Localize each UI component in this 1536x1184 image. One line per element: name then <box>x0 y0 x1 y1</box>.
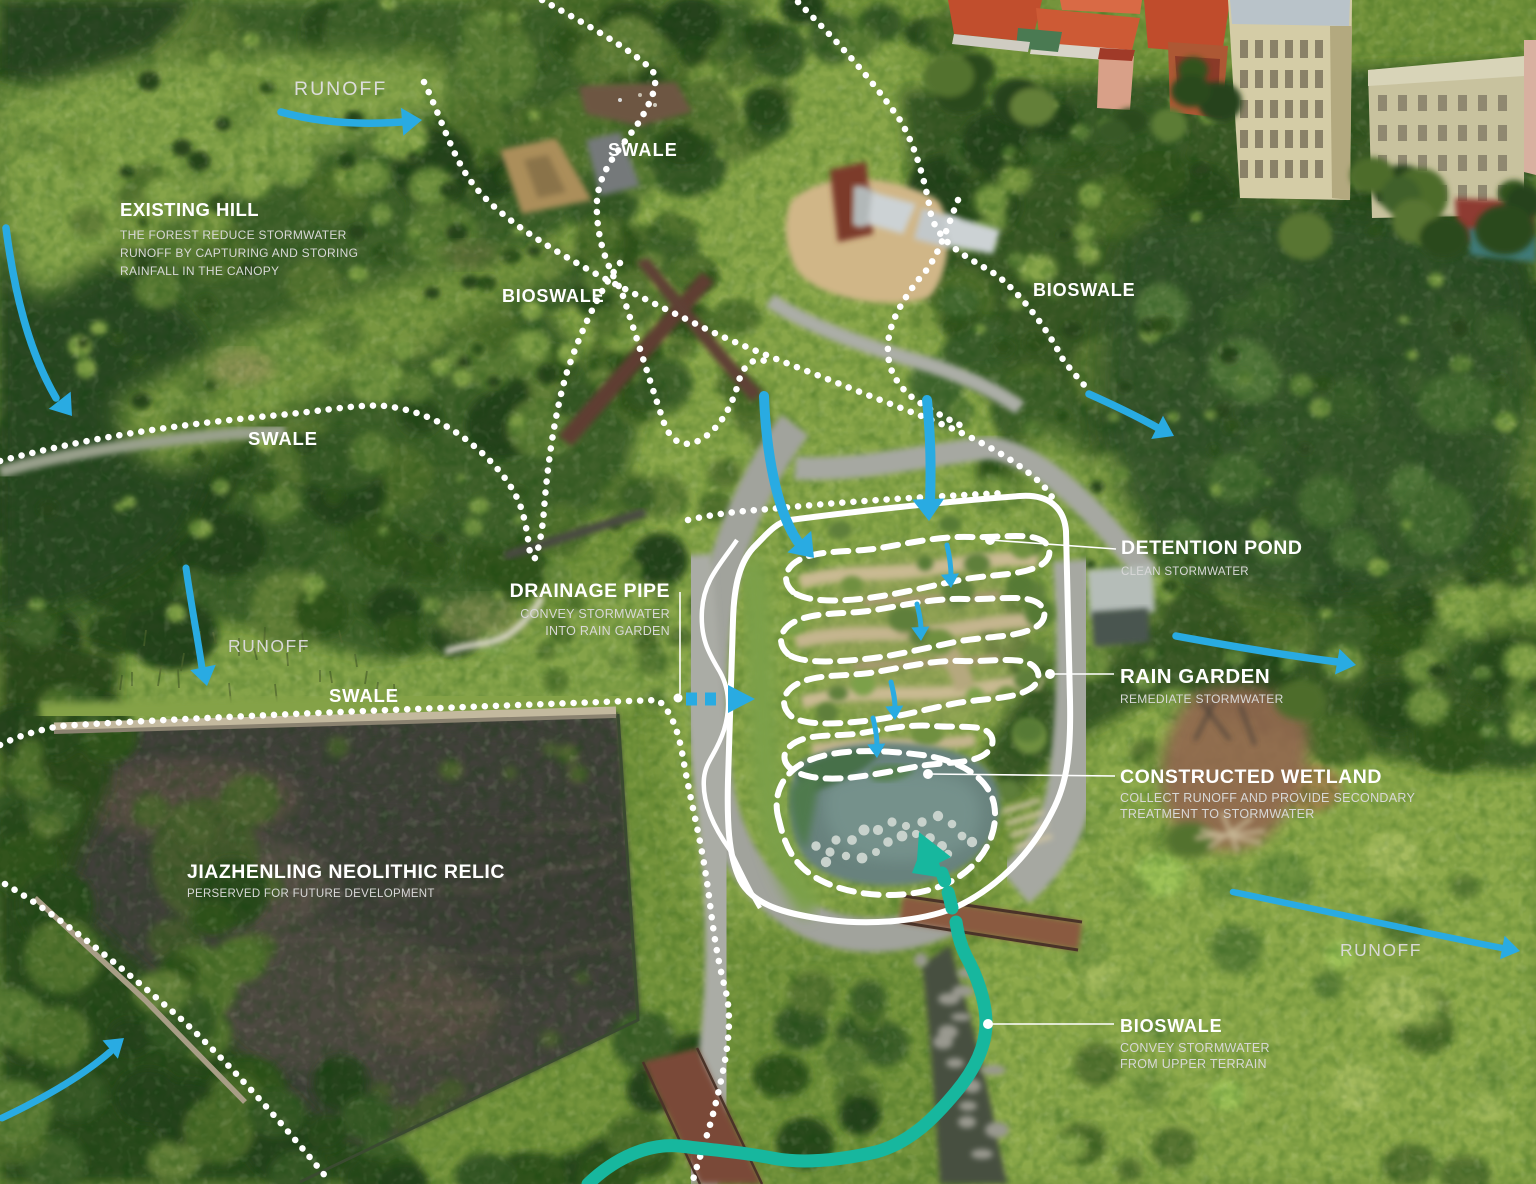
svg-text:CONVEY STORMWATER: CONVEY STORMWATER <box>1120 1041 1270 1055</box>
svg-text:CONSTRUCTED WETLAND: CONSTRUCTED WETLAND <box>1120 766 1382 788</box>
svg-text:THE FOREST REDUCE STORMWATER: THE FOREST REDUCE STORMWATER <box>120 228 347 242</box>
svg-text:BIOSWALE: BIOSWALE <box>1033 280 1135 300</box>
svg-text:CONVEY STORMWATER: CONVEY STORMWATER <box>520 607 670 621</box>
svg-text:CLEAN STORMWATER: CLEAN STORMWATER <box>1121 566 1249 578</box>
svg-text:INTO RAIN GARDEN: INTO RAIN GARDEN <box>545 624 670 638</box>
svg-text:RUNOFF BY CAPTURING AND STORIN: RUNOFF BY CAPTURING AND STORING <box>120 246 358 260</box>
svg-text:RAINFALL IN THE CANOPY: RAINFALL IN THE CANOPY <box>120 264 279 278</box>
svg-text:EXISTING HILL: EXISTING HILL <box>120 199 259 220</box>
svg-text:JIAZHENLING NEOLITHIC RELIC: JIAZHENLING NEOLITHIC RELIC <box>187 861 505 883</box>
svg-text:BIOSWALE: BIOSWALE <box>502 286 604 306</box>
svg-text:DETENTION POND: DETENTION POND <box>1121 537 1302 559</box>
svg-text:SWALE: SWALE <box>329 685 399 706</box>
svg-text:TREATMENT TO STORMWATER: TREATMENT TO STORMWATER <box>1120 807 1315 821</box>
svg-text:DRAINAGE PIPE: DRAINAGE PIPE <box>510 580 670 602</box>
svg-text:REMEDIATE STORMWATER: REMEDIATE STORMWATER <box>1120 692 1284 706</box>
svg-text:BIOSWALE: BIOSWALE <box>1120 1016 1222 1036</box>
svg-text:FROM UPPER TERRAIN: FROM UPPER TERRAIN <box>1120 1057 1267 1071</box>
svg-text:SWALE: SWALE <box>608 140 678 160</box>
svg-text:RUNOFF: RUNOFF <box>228 636 310 656</box>
svg-text:RUNOFF: RUNOFF <box>294 78 387 100</box>
svg-text:RUNOFF: RUNOFF <box>1340 940 1422 960</box>
svg-text:RAIN GARDEN: RAIN GARDEN <box>1120 665 1270 688</box>
svg-text:PERSERVED FOR FUTURE DEVELOPME: PERSERVED FOR FUTURE DEVELOPMENT <box>187 888 435 900</box>
svg-text:SWALE: SWALE <box>248 428 318 449</box>
svg-text:COLLECT RUNOFF AND PROVIDE SEC: COLLECT RUNOFF AND PROVIDE SECONDARY <box>1120 791 1415 805</box>
